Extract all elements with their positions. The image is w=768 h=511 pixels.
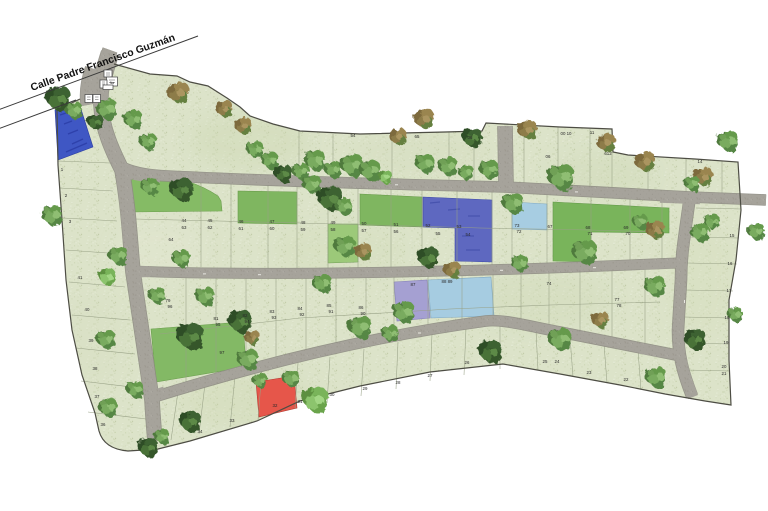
svg-text:79: 79 (166, 298, 171, 303)
svg-text:70: 70 (626, 231, 631, 236)
svg-text:54: 54 (466, 232, 471, 237)
svg-text:94: 94 (245, 319, 250, 324)
svg-text:17: 17 (727, 288, 732, 293)
svg-text:54: 54 (351, 133, 356, 138)
svg-text:49: 49 (331, 220, 336, 225)
svg-text:77: 77 (615, 297, 620, 302)
svg-text:56: 56 (394, 229, 399, 234)
svg-text:24: 24 (555, 359, 560, 364)
svg-text:87: 87 (411, 282, 416, 287)
svg-text:68: 68 (586, 225, 591, 230)
svg-text:46: 46 (239, 219, 244, 224)
svg-text:40: 40 (85, 307, 90, 312)
svg-text:93: 93 (272, 315, 277, 320)
svg-text:71: 71 (588, 231, 593, 236)
svg-text:21: 21 (722, 371, 727, 376)
svg-text:50: 50 (362, 221, 367, 226)
svg-text:33: 33 (230, 418, 235, 423)
svg-text:61: 61 (239, 226, 244, 231)
svg-text:72: 72 (517, 229, 522, 234)
svg-text:28: 28 (396, 380, 401, 385)
svg-text:25: 25 (543, 359, 548, 364)
svg-text:78: 78 (617, 303, 622, 308)
svg-text:32: 32 (273, 403, 278, 408)
svg-text:52: 52 (426, 223, 431, 228)
svg-text:73: 73 (515, 223, 520, 228)
svg-text:36: 36 (101, 422, 106, 427)
svg-text:63: 63 (182, 225, 187, 230)
svg-text:55: 55 (436, 231, 441, 236)
svg-text:95: 95 (216, 322, 221, 327)
svg-text:48: 48 (301, 220, 306, 225)
svg-text:23: 23 (587, 370, 592, 375)
svg-text:26: 26 (465, 360, 470, 365)
svg-text:45: 45 (208, 218, 213, 223)
svg-text:34: 34 (198, 429, 203, 434)
svg-text:64: 64 (169, 237, 174, 242)
svg-text:82: 82 (243, 313, 248, 318)
svg-text:16: 16 (728, 261, 733, 266)
svg-text:47: 47 (270, 219, 275, 224)
svg-text:14: 14 (698, 159, 703, 164)
svg-text:62: 62 (208, 225, 213, 230)
svg-text:51: 51 (394, 222, 399, 227)
svg-text:60: 60 (270, 226, 275, 231)
svg-text:53: 53 (457, 224, 462, 229)
svg-text:96: 96 (168, 304, 173, 309)
svg-text:38: 38 (93, 366, 98, 371)
svg-text:31: 31 (298, 399, 303, 404)
svg-text:41: 41 (78, 275, 83, 280)
svg-text:612: 612 (604, 151, 612, 156)
svg-text:81: 81 (214, 316, 219, 321)
svg-text:22: 22 (624, 377, 629, 382)
svg-text:83: 83 (270, 309, 275, 314)
svg-text:57: 57 (362, 228, 367, 233)
svg-text:06: 06 (468, 135, 473, 140)
svg-text:00 10: 00 10 (561, 131, 573, 136)
svg-text:18: 18 (725, 315, 730, 320)
svg-text:69: 69 (624, 225, 629, 230)
svg-text:06: 06 (546, 154, 551, 159)
svg-text:59: 59 (301, 227, 306, 232)
svg-text:19: 19 (724, 340, 729, 345)
svg-text:65: 65 (415, 134, 420, 139)
svg-text:39: 39 (89, 338, 94, 343)
svg-text:88 89: 88 89 (442, 279, 454, 284)
svg-text:29: 29 (363, 386, 368, 391)
svg-text:92: 92 (300, 312, 305, 317)
svg-text:67: 67 (548, 224, 553, 229)
svg-text:91: 91 (329, 309, 334, 314)
svg-text:30: 30 (330, 392, 335, 397)
svg-text:27: 27 (428, 373, 433, 378)
svg-text:11: 11 (590, 130, 595, 135)
svg-text:44: 44 (182, 218, 187, 223)
svg-text:Na: Na (110, 81, 114, 85)
svg-text:20: 20 (722, 364, 727, 369)
svg-text:90: 90 (361, 311, 366, 316)
svg-text:86: 86 (359, 305, 364, 310)
svg-text:37: 37 (95, 394, 100, 399)
svg-text:97: 97 (220, 350, 225, 355)
svg-text:15: 15 (730, 233, 735, 238)
svg-text:85: 85 (327, 303, 332, 308)
svg-text:58: 58 (331, 227, 336, 232)
svg-text:84: 84 (298, 306, 303, 311)
svg-text:74: 74 (547, 281, 552, 286)
